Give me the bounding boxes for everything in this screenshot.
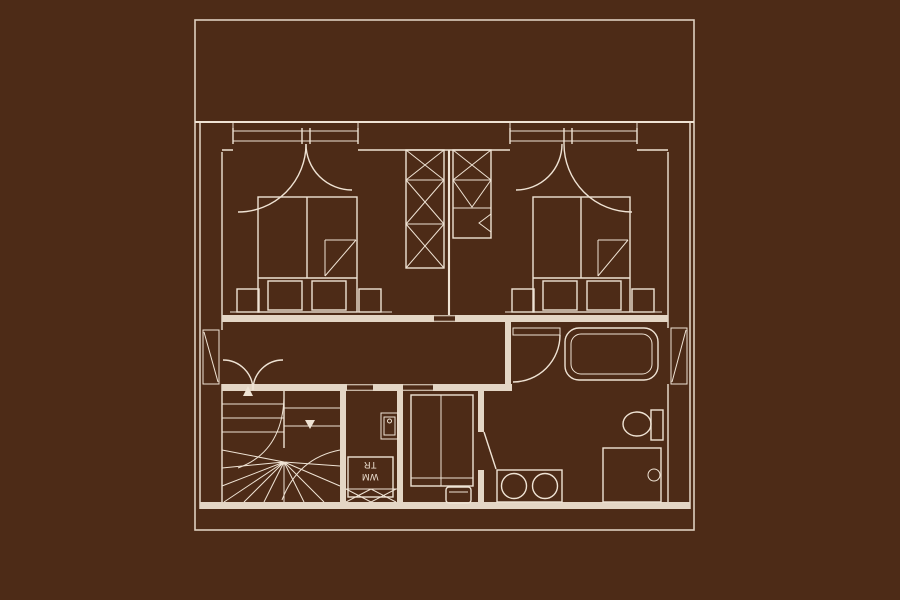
bathroom [497,328,663,502]
blanket-fold [325,240,356,276]
floor-plan-page: TR WM [0,0,900,600]
east-wall-upper [478,391,484,432]
bathtub [565,328,658,380]
east-wall-lower [478,470,484,502]
nightstand [512,289,534,312]
door-leaf [484,432,496,469]
wardrobe-right [453,150,491,238]
folding-shelf [346,489,397,502]
pillow [543,281,577,310]
pillow [268,281,302,310]
outer-boundary [195,20,694,530]
wall-basin [381,413,398,439]
nightstand [359,289,381,312]
washing-machine-label: WM [362,472,379,482]
nightstand [237,289,259,312]
balcony-door-right [510,128,637,212]
pillow [446,487,471,503]
single-bedroom [411,391,496,503]
bathroom-door [513,328,560,382]
balcony [195,122,694,129]
blanket-fold [598,240,628,276]
pillow [312,281,346,310]
toilet [623,410,663,440]
shower [603,448,661,502]
door-threshold [347,385,373,391]
door-threshold [434,316,455,322]
window-east [671,328,687,384]
laundry-closet: TR WM [340,391,403,502]
dryer-label: TR [364,460,377,470]
double-bed-left [230,197,392,312]
staircase [222,391,340,502]
nightstand [632,289,654,312]
single-bed [411,395,473,503]
pillow [587,281,621,310]
double-washbasin [497,470,562,502]
door-threshold [403,385,433,391]
window-west [203,330,219,384]
double-bed-right [505,197,662,312]
south-wall [200,502,690,509]
winder-treads [222,450,340,502]
floor-plan: TR WM [0,0,900,600]
wardrobe-left [406,150,444,268]
balcony-door-left [233,128,358,212]
bathroom-west-wall [505,322,511,384]
stair-arrow-down-icon [305,420,315,429]
